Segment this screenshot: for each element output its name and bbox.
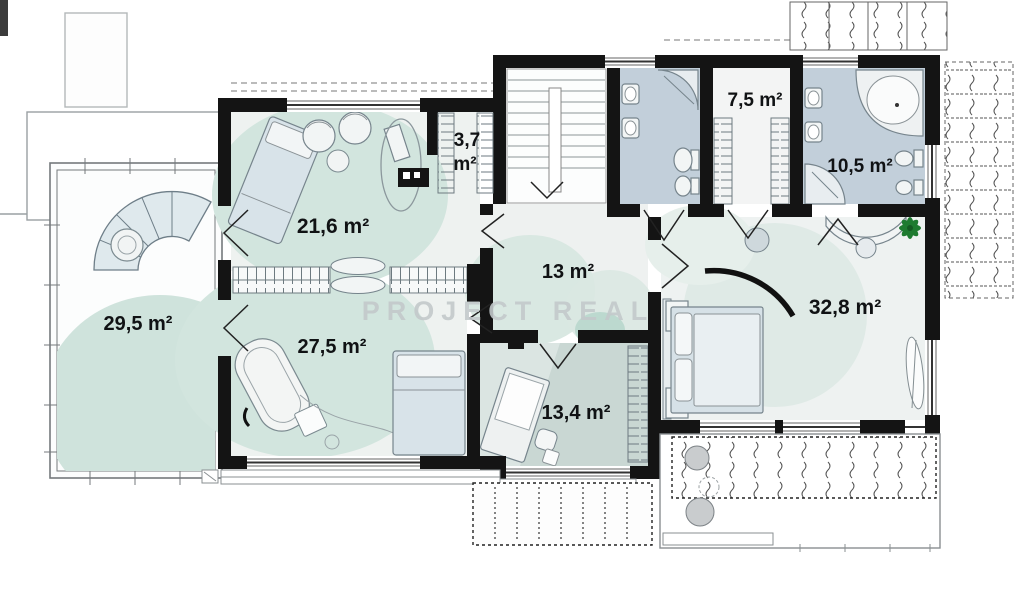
- window: [905, 420, 925, 434]
- room-label-bathroom: 10,5 m²: [827, 156, 892, 177]
- roof-hatch-right: [945, 62, 1013, 298]
- bidet-icon: [675, 176, 699, 196]
- window: [506, 466, 630, 479]
- window: [925, 145, 940, 198]
- bedroom-terrace: [660, 434, 940, 552]
- round-table: [111, 229, 143, 261]
- stool: [856, 238, 876, 258]
- pillow: [675, 313, 692, 355]
- armchair: [339, 112, 371, 144]
- bidet-icon: [896, 180, 923, 195]
- dresser: [331, 277, 385, 294]
- window: [925, 340, 940, 415]
- sill-end-box: [202, 470, 218, 483]
- room-label-master-bedroom: 32,8 m²: [809, 296, 881, 319]
- pergola-hatch-study: [473, 483, 652, 545]
- room-label-wardrobe: 7,5 m²: [728, 90, 783, 111]
- chimney-outline: [65, 13, 127, 107]
- window: [803, 55, 858, 68]
- floor-plan: 29,5 m² 21,6 m² 3,7 m² 7,5 m² 10,5 m² 13…: [0, 0, 1024, 591]
- floor-plan-svg: 29,5 m² 21,6 m² 3,7 m² 7,5 m² 10,5 m² 13…: [0, 0, 1024, 591]
- room-label-terrace: 29,5 m²: [104, 313, 173, 335]
- single-bed: [393, 351, 465, 455]
- pergola-hatch-bedroom: [672, 437, 936, 498]
- side-table: [327, 150, 349, 172]
- room-label-study: 13,4 m²: [542, 402, 611, 424]
- stair-rail: [549, 88, 561, 192]
- edge-artifact: [0, 0, 8, 36]
- dresser: [331, 258, 385, 275]
- room-label-closet-line2: m²: [453, 154, 476, 175]
- room-label-closet-line1: 3,7: [454, 130, 480, 151]
- double-bed: [671, 307, 763, 413]
- window: [243, 456, 424, 469]
- window: [700, 420, 860, 434]
- shrub: [685, 446, 709, 470]
- watermark: PROJECT REAL: [362, 296, 655, 326]
- room-label-bedroom-1: 21,6 m²: [297, 215, 369, 238]
- toilet-icon: [895, 150, 923, 167]
- pillow: [675, 359, 692, 401]
- plant-icon: [899, 217, 921, 239]
- window: [605, 55, 655, 68]
- window: [283, 98, 424, 112]
- room-label-bedroom-2: 27,5 m²: [298, 336, 367, 358]
- terrace-rail: [663, 533, 773, 545]
- pouf: [745, 228, 769, 252]
- roof-hatch-top: [790, 2, 947, 50]
- staircase: [507, 69, 606, 203]
- room-label-hall: 13 m²: [542, 261, 595, 283]
- toilet-icon: [674, 148, 699, 172]
- armchair: [303, 120, 335, 152]
- shrub: [686, 498, 714, 526]
- wardrobe-shelves: [628, 346, 648, 462]
